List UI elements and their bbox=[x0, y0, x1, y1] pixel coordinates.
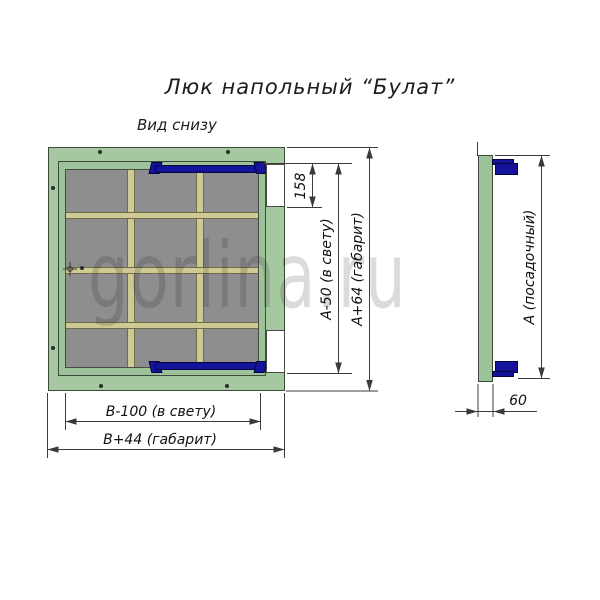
side-hinge-bracket-top bbox=[492, 159, 518, 176]
horizontal-rib bbox=[66, 212, 258, 219]
bracket-lip bbox=[492, 371, 514, 377]
view-label-bottom-view: Вид снизу bbox=[137, 116, 217, 134]
horizontal-rib bbox=[66, 267, 258, 274]
hinge-bar-bottom bbox=[150, 359, 266, 373]
horizontal-rib bbox=[66, 322, 258, 329]
frame-notch-bottom bbox=[266, 330, 285, 373]
hinge-bar bbox=[155, 362, 263, 370]
dim-label-overall-width: В+44 (габарит) bbox=[103, 432, 217, 448]
hinge-bar-top bbox=[150, 162, 266, 176]
hinge-bar bbox=[155, 165, 263, 173]
screw-icon bbox=[225, 384, 229, 388]
screw-icon bbox=[226, 150, 230, 154]
dim-label-158: 158 bbox=[293, 173, 309, 200]
screw-icon bbox=[99, 384, 103, 388]
drawing-title: Люк напольный “Булат” bbox=[110, 75, 510, 99]
dim-label-clear-width: В-100 (в свету) bbox=[106, 404, 216, 420]
screw-icon bbox=[51, 346, 55, 350]
screw-icon bbox=[80, 266, 84, 270]
screw-icon bbox=[98, 150, 102, 154]
frame-notch-top bbox=[266, 164, 285, 207]
screw-icon bbox=[51, 186, 55, 190]
side-view-profile bbox=[478, 155, 493, 382]
dim-label-overall-height: А+64 (габарит) bbox=[350, 212, 366, 327]
dim-label-60: 60 bbox=[509, 393, 527, 409]
side-hinge-bracket-bottom bbox=[492, 360, 518, 377]
dim-label-seat-height: А (посадочный) bbox=[522, 210, 538, 326]
lid-panel-grid bbox=[65, 169, 259, 368]
bracket-body bbox=[495, 163, 518, 175]
dim-label-clear-height: А-50 (в свету) bbox=[319, 218, 335, 321]
